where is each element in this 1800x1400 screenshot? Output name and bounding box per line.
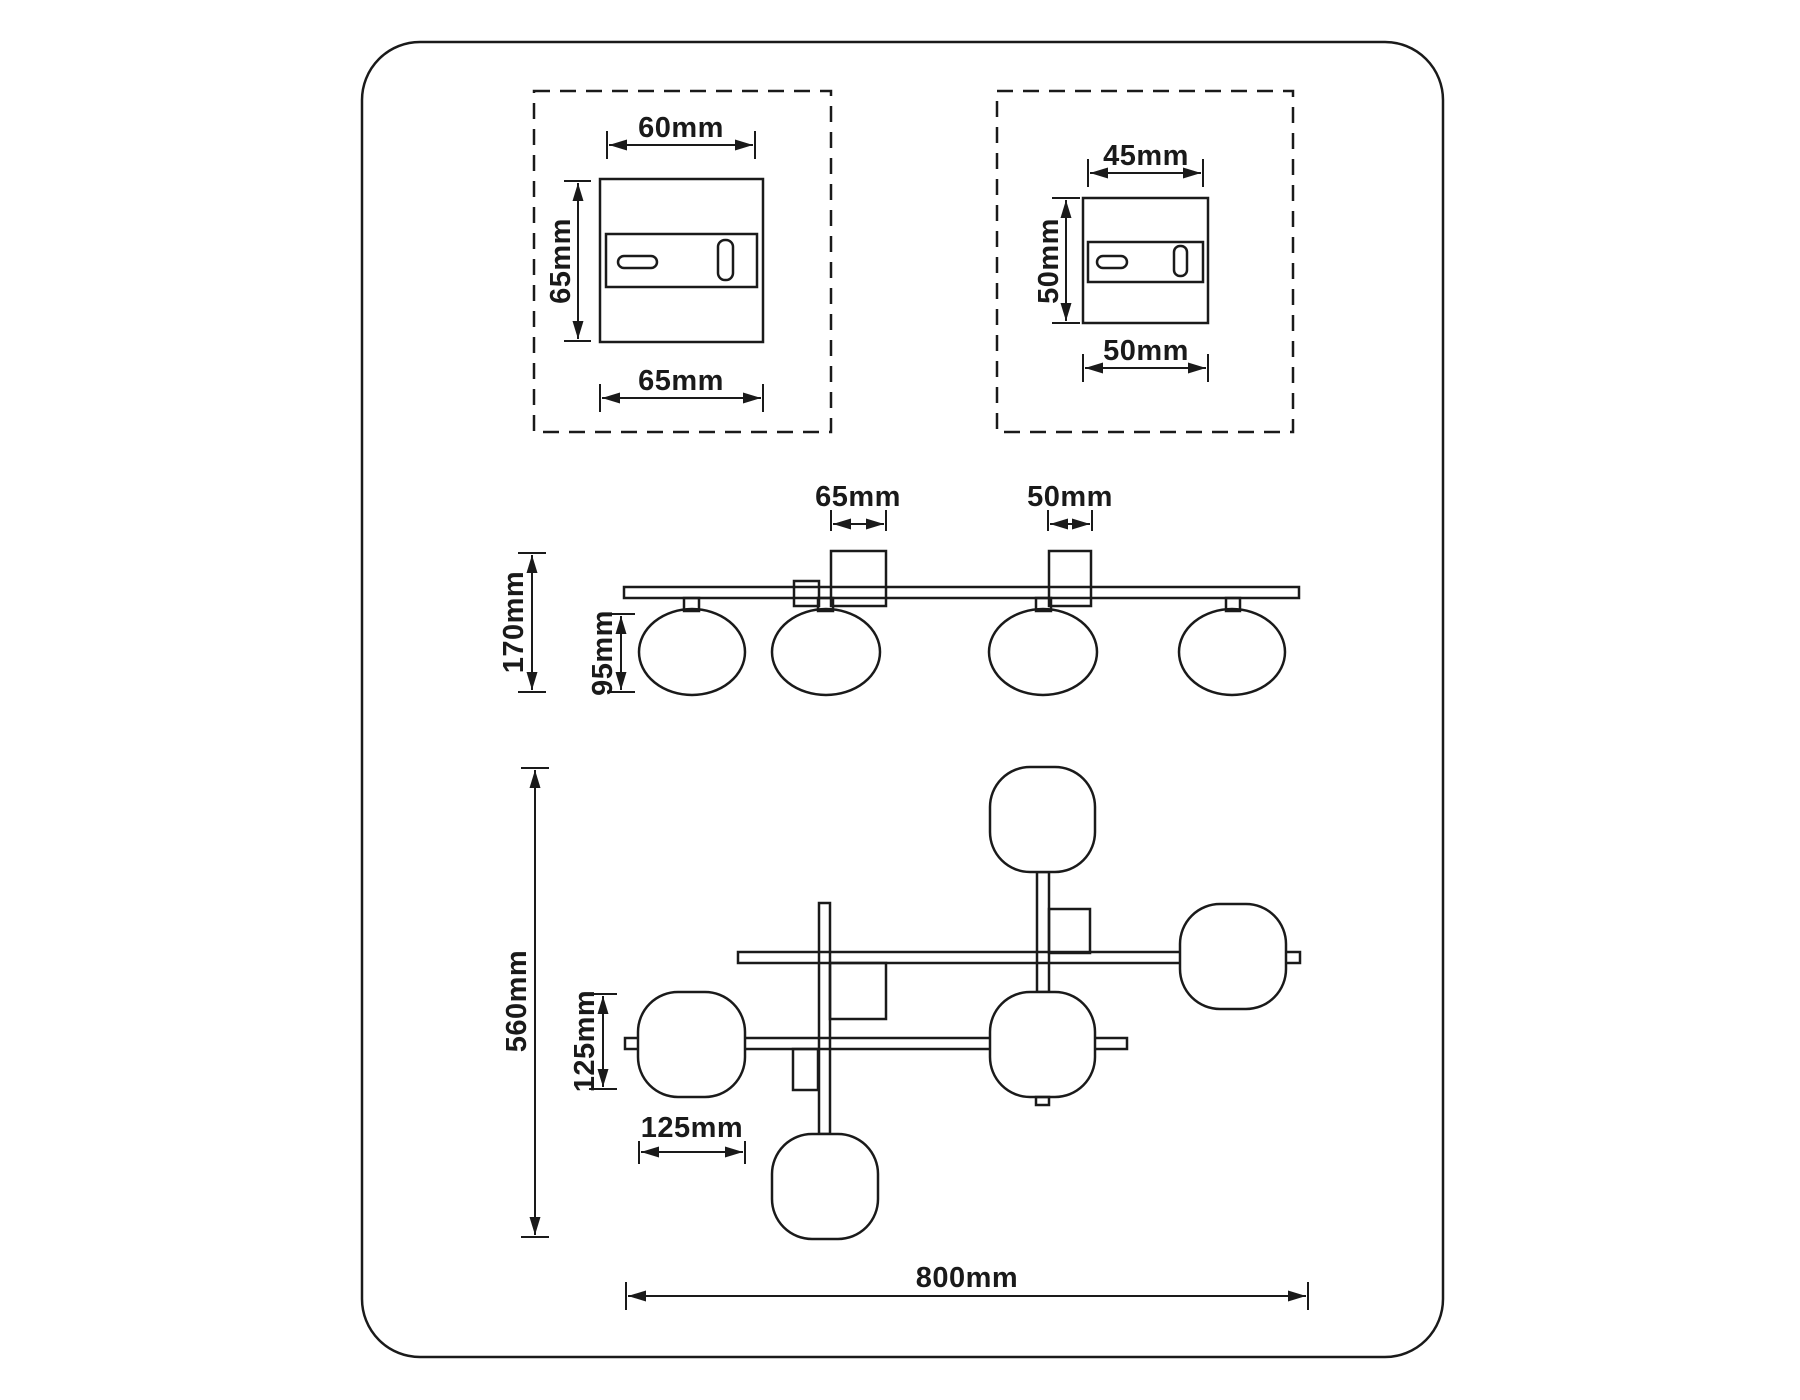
dim-small-bracket-top-width: 45mm (1088, 140, 1203, 187)
dim-small-bracket-side-height: 50mm (1033, 198, 1080, 323)
plan-globe-center (990, 992, 1095, 1097)
dim-side-globe-height: 95mm (587, 610, 635, 696)
dim-plan-globe-height: 125mm (569, 990, 617, 1092)
dim-large-bracket-bottom-width: 65mm (600, 365, 763, 412)
plan-view: 560mm 125mm 125mm 800mm (501, 767, 1308, 1310)
large-bracket-slot-horizontal (618, 256, 657, 268)
large-bracket-plate (606, 234, 757, 287)
small-bracket-slot-vertical (1174, 246, 1187, 276)
side-view-globe-2 (772, 609, 880, 695)
dim-label: 125mm (569, 990, 601, 1092)
dim-label: 125mm (641, 1112, 743, 1144)
side-view-globe-3 (989, 609, 1097, 695)
dim-label: 65mm (815, 481, 901, 513)
plan-globe-bottom (772, 1134, 878, 1239)
dim-label: 170mm (498, 571, 530, 673)
dim-label: 95mm (587, 610, 619, 696)
small-bracket-slot-horizontal (1097, 256, 1127, 268)
dim-side-block-small-width: 50mm (1027, 481, 1113, 531)
dim-label: 60mm (638, 112, 724, 144)
dim-label: 50mm (1033, 218, 1065, 304)
side-view-canopy-block (794, 581, 819, 606)
plan-globe-top (990, 767, 1095, 872)
plan-top-globe-stem (1037, 872, 1049, 992)
drawing-border (362, 42, 1443, 1357)
plan-globe-right (1180, 904, 1286, 1009)
side-view-arm-bar (624, 587, 1299, 598)
detail-view-large-bracket: 60mm 65mm 65mm (534, 91, 831, 432)
dim-side-block-large-width: 65mm (815, 481, 901, 531)
dim-plan-total-height: 560mm (501, 768, 549, 1237)
dim-label: 65mm (545, 218, 577, 304)
dim-label: 800mm (916, 1262, 1018, 1294)
side-view-globe-1 (639, 609, 745, 695)
detail-view-small-bracket: 45mm 50mm 50mm (997, 91, 1293, 432)
dim-side-total-height: 170mm (498, 553, 546, 692)
dim-plan-total-width: 800mm (626, 1262, 1308, 1310)
dim-large-bracket-side-height: 65mm (545, 181, 591, 341)
dim-label: 45mm (1103, 140, 1189, 172)
large-bracket-body (600, 179, 763, 342)
side-view-globe-4 (1179, 609, 1285, 695)
plan-block-large (830, 963, 886, 1019)
dim-label: 50mm (1103, 335, 1189, 367)
plan-globe-left (638, 992, 745, 1097)
dimension-drawing: 60mm 65mm 65mm 45mm (0, 0, 1800, 1400)
dim-large-bracket-top-width: 60mm (607, 112, 755, 159)
dim-plan-globe-width: 125mm (639, 1112, 745, 1164)
dim-small-bracket-bottom-width: 50mm (1083, 335, 1208, 382)
plan-block-small (1049, 909, 1090, 953)
large-bracket-slot-vertical (718, 240, 733, 280)
technical-drawing-page: 60mm 65mm 65mm 45mm (0, 0, 1800, 1400)
plan-canopy-block (793, 1049, 818, 1090)
dim-label: 65mm (638, 365, 724, 397)
plan-globe-center-tab (1036, 1097, 1049, 1105)
side-elevation-view: 65mm 50mm 170mm 95mm (498, 481, 1299, 696)
dim-label: 50mm (1027, 481, 1113, 513)
dim-label: 560mm (501, 950, 533, 1052)
small-bracket-body (1083, 198, 1208, 323)
plan-left-cross-stem (819, 903, 830, 1134)
